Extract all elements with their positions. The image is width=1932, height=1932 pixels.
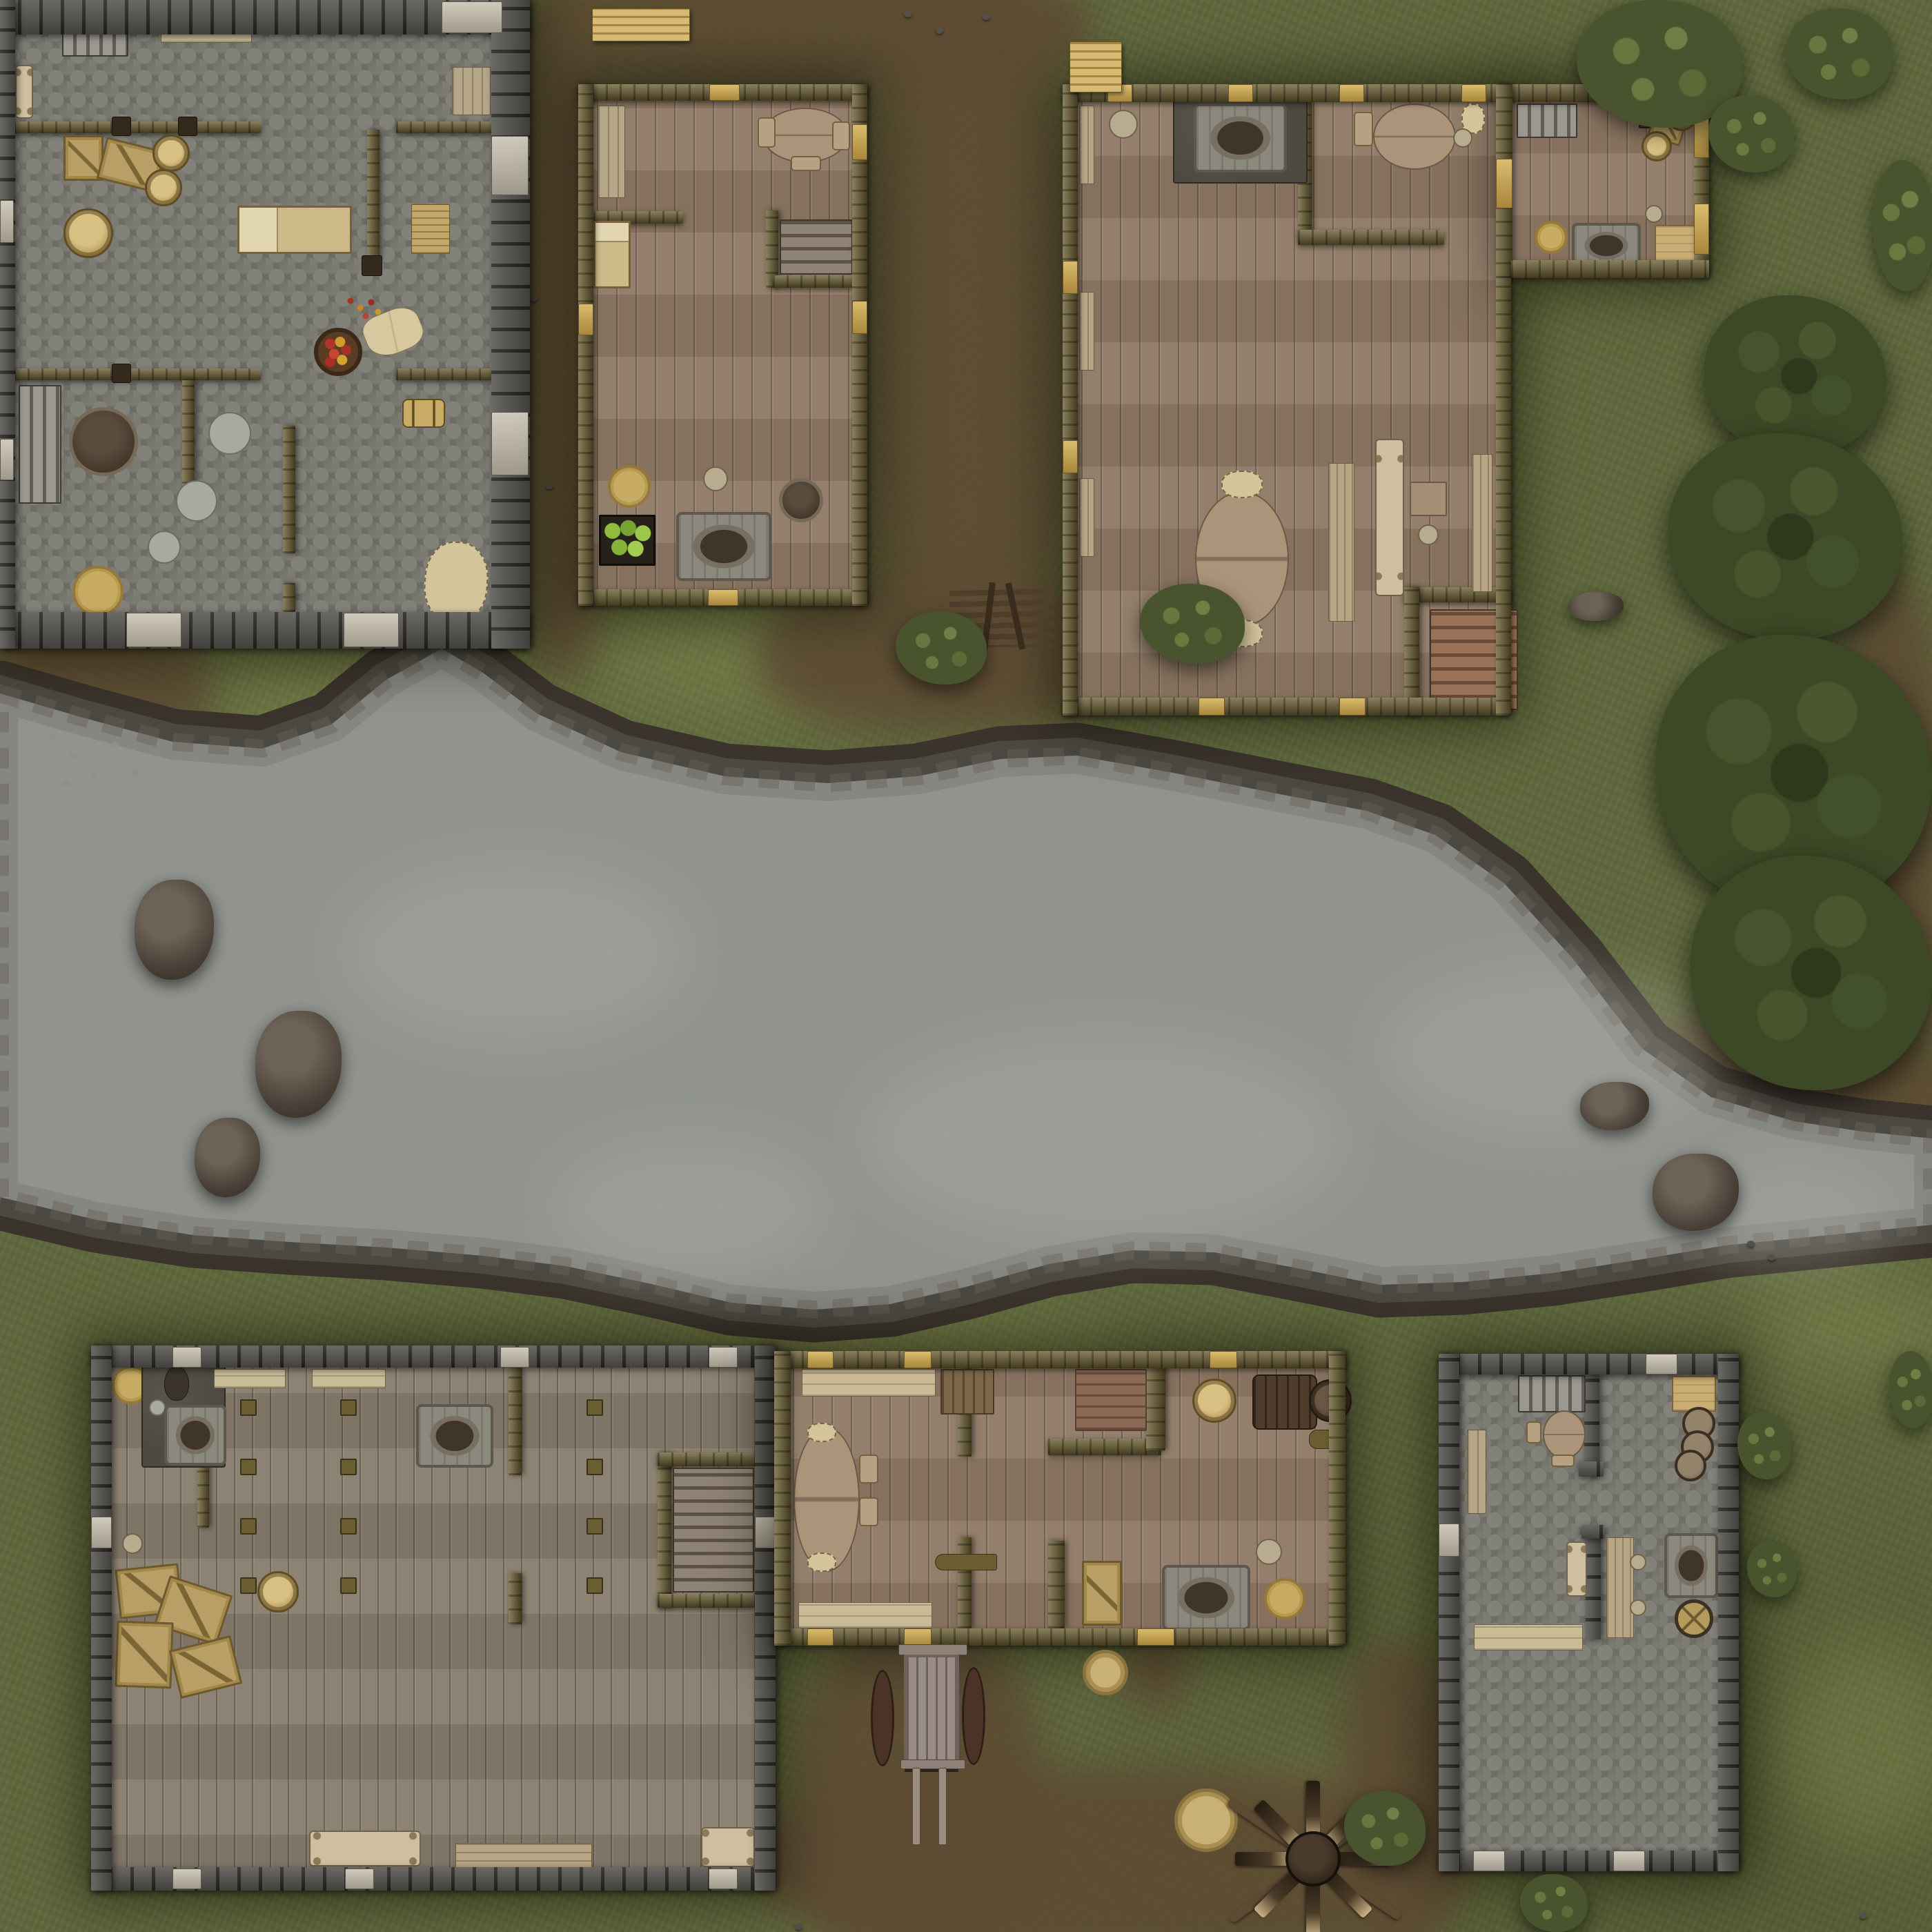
hearth (1664, 1533, 1718, 1598)
wood-wall (1496, 278, 1511, 716)
door-post (755, 1517, 776, 1548)
door-post (345, 1869, 374, 1889)
wood-wall (283, 426, 295, 553)
bench (1474, 1624, 1583, 1650)
bench (1606, 1537, 1634, 1638)
door-post (578, 304, 593, 335)
stairs (1518, 1375, 1586, 1412)
bench (1079, 292, 1094, 371)
support-post (340, 1518, 357, 1535)
cart-handle (938, 1768, 947, 1845)
chair (758, 117, 776, 148)
wood-wall (1048, 1541, 1065, 1628)
support-post (240, 1518, 257, 1535)
water-highlight (862, 1035, 1345, 1242)
support-post (240, 1399, 257, 1416)
stone-wall (0, 612, 530, 649)
barrel (152, 135, 190, 172)
bench (1079, 106, 1094, 184)
platter (1264, 1578, 1305, 1619)
wood-wall (396, 368, 493, 380)
battle-map (0, 0, 1932, 1932)
wood-wall (774, 1628, 1345, 1646)
wood-wall (1329, 1351, 1345, 1646)
stool (1630, 1554, 1646, 1570)
door-post (1646, 1354, 1677, 1374)
stone-wall (1439, 1354, 1739, 1374)
shelf (452, 67, 491, 115)
cooking-bowl (69, 407, 138, 476)
counter (214, 1369, 286, 1388)
wood-wall (1146, 1358, 1165, 1450)
door-post (1137, 1628, 1174, 1646)
chair (1354, 112, 1373, 146)
stone-wall (91, 1345, 112, 1891)
door-post (500, 1347, 529, 1368)
basket (1174, 1788, 1238, 1852)
shelf (1467, 1430, 1486, 1514)
cooking-pot (1285, 1831, 1341, 1886)
stone-wall (1584, 1373, 1599, 1464)
stairs (1517, 103, 1577, 138)
door-post (904, 1351, 931, 1368)
pebble (1768, 1254, 1775, 1261)
wood-wall (1511, 260, 1709, 278)
cabbage-crate (599, 515, 655, 566)
water-highlight (552, 1138, 828, 1276)
gravel-pebble (90, 773, 98, 780)
door-post (1613, 1851, 1645, 1871)
plate (208, 412, 251, 455)
hearth (676, 512, 771, 581)
platter (72, 566, 124, 617)
door-post (1694, 204, 1709, 255)
barrel (257, 1571, 299, 1613)
barrel (1642, 131, 1672, 161)
chair (1526, 1421, 1541, 1443)
door-post (126, 613, 181, 647)
apple-basket (314, 328, 362, 376)
cart-wheel (871, 1670, 894, 1766)
gravel-pebble (62, 780, 70, 787)
stool (1256, 1539, 1282, 1565)
wall-post (112, 364, 131, 383)
wood-wall (958, 1537, 972, 1628)
door-post (172, 1869, 201, 1889)
stairs (19, 385, 61, 504)
dark-barrel (1252, 1374, 1317, 1430)
barrel (63, 208, 113, 258)
gravel-pebble (48, 731, 57, 738)
chair (859, 1497, 878, 1526)
cabinet (940, 1369, 994, 1414)
stone-wall (491, 0, 530, 649)
pebble (530, 295, 538, 302)
support-post (586, 1459, 603, 1475)
chair (859, 1455, 878, 1483)
support-post (240, 1577, 257, 1594)
plate (148, 531, 181, 564)
door-post (491, 412, 529, 475)
water-highlight (1380, 966, 1725, 1138)
door-post (1228, 84, 1253, 102)
stone-wall (1718, 1354, 1739, 1871)
bench (309, 1831, 421, 1866)
wood-wall (14, 368, 261, 380)
wood-wall (578, 84, 593, 606)
hearth (1194, 103, 1287, 172)
wood-wall (774, 1351, 1345, 1368)
crate (115, 1621, 173, 1689)
gravel-pebble (131, 769, 139, 776)
door-post (709, 1869, 738, 1889)
wood-wall (1063, 698, 1511, 716)
door-post (1199, 698, 1225, 716)
stairs (780, 219, 853, 275)
door-post (1339, 84, 1364, 102)
stool (122, 1533, 143, 1554)
stone-wall (1581, 1525, 1605, 1539)
wood-wall (774, 1351, 791, 1646)
door-post (1496, 159, 1512, 208)
bed (237, 206, 352, 254)
stool (1418, 524, 1439, 545)
support-post (240, 1459, 257, 1475)
water-highlight (345, 862, 690, 1042)
stool (1453, 128, 1472, 148)
stone-wall (1579, 1461, 1604, 1477)
door-post (1473, 1851, 1505, 1871)
cart-frame (898, 1644, 967, 1655)
wall-post (178, 117, 197, 136)
bed (593, 221, 631, 288)
bench (1079, 478, 1094, 557)
door-post (172, 1347, 201, 1368)
bench (1566, 1541, 1587, 1597)
wood-wall (852, 84, 867, 606)
door-post (91, 1517, 112, 1548)
pebble (1860, 1913, 1867, 1919)
cart-wheel (962, 1667, 985, 1765)
stool (1109, 110, 1138, 139)
bed (1655, 225, 1696, 262)
hearth (416, 1404, 493, 1468)
door-post (852, 301, 867, 334)
stool (1645, 205, 1663, 223)
stone-wall (1586, 1537, 1601, 1639)
wood-wall (509, 1368, 522, 1475)
counter (312, 1369, 386, 1388)
door-post (708, 589, 738, 606)
table (1410, 482, 1447, 516)
pebble (936, 28, 943, 34)
bench (1375, 439, 1404, 596)
door-post (852, 124, 867, 160)
plank-shelf (411, 204, 450, 254)
bed (1672, 1376, 1716, 1412)
door-post (442, 1, 502, 33)
cart-bed (904, 1655, 959, 1772)
bench (455, 1843, 592, 1871)
pelt-seat (1221, 471, 1263, 498)
chair (791, 156, 821, 171)
bench (802, 1369, 936, 1397)
support-post (340, 1577, 357, 1594)
cart-frame (900, 1759, 965, 1769)
support-post (586, 1577, 603, 1594)
basket (1083, 1650, 1128, 1695)
bush (1747, 1541, 1797, 1597)
wood-wall (14, 121, 261, 133)
anvil (164, 1366, 189, 1401)
bench (1472, 454, 1492, 592)
wood-wall (1404, 587, 1419, 716)
wood-wall (1404, 587, 1511, 602)
door-post (344, 613, 399, 647)
wood-wall (658, 1594, 756, 1608)
pebble (983, 14, 990, 20)
pelt-seat (807, 1423, 836, 1442)
bench (798, 1602, 932, 1628)
door-post (709, 84, 740, 101)
wall-post (362, 255, 382, 276)
crate (1082, 1561, 1122, 1626)
cooking-bowl (779, 478, 823, 522)
hearth (1162, 1565, 1250, 1630)
platter (608, 465, 651, 508)
door-post (0, 200, 14, 243)
barrel (1192, 1379, 1236, 1423)
chair (1551, 1455, 1575, 1467)
stool (1630, 1599, 1646, 1616)
plate (149, 1399, 166, 1416)
round-table (1373, 103, 1456, 170)
wood-platform (1075, 1369, 1147, 1431)
stone-wall (0, 0, 15, 649)
door-post (807, 1351, 834, 1368)
wood-wall (658, 1452, 671, 1608)
door-post (0, 439, 14, 480)
plank-pile (592, 8, 690, 41)
door-post (709, 1347, 738, 1368)
stone-wall (1439, 1354, 1459, 1871)
bench (701, 1827, 755, 1867)
gravel-pebble (69, 752, 77, 759)
door-post (1461, 84, 1486, 102)
pebble (904, 11, 911, 17)
wall-stub (935, 1554, 997, 1570)
hearth (164, 1405, 226, 1466)
door-post (491, 136, 529, 195)
barrel (1675, 1450, 1706, 1481)
pebble (1747, 1241, 1755, 1247)
barrel (145, 169, 182, 206)
lidded-barrel (1675, 1599, 1713, 1638)
support-post (340, 1459, 357, 1475)
door-post (1063, 440, 1078, 473)
stone-wall (755, 1345, 776, 1891)
plank-pile (1069, 41, 1122, 92)
oval-table (793, 1427, 860, 1572)
door-post (807, 1628, 834, 1646)
support-post (340, 1399, 357, 1416)
wood-wall (658, 1452, 756, 1466)
wood-wall (773, 275, 854, 288)
bench (15, 65, 33, 119)
door-post (1439, 1524, 1459, 1557)
platter (1535, 221, 1568, 254)
chair (832, 121, 850, 150)
wood-wall (367, 130, 379, 261)
stool (703, 466, 728, 491)
door-post (1210, 1351, 1237, 1368)
wood-wall (1048, 1439, 1161, 1455)
round-table (1543, 1410, 1586, 1459)
support-post (586, 1518, 603, 1535)
shelf (598, 106, 625, 198)
bench (1328, 463, 1354, 622)
wood-wall (396, 121, 493, 133)
gravel-pebble (110, 742, 119, 749)
wood-wall (1063, 84, 1078, 716)
door-post (1063, 261, 1078, 294)
cart-handle (912, 1768, 920, 1845)
door-post (904, 1628, 931, 1646)
door-post (1339, 698, 1366, 716)
pelt-seat (807, 1552, 836, 1572)
support-post (586, 1399, 603, 1416)
wood-wall (283, 583, 295, 612)
wood-wall (509, 1573, 522, 1624)
wood-wall (1298, 230, 1444, 245)
barrel-on-side (402, 399, 445, 428)
wall-post (112, 117, 131, 136)
pebble (795, 1924, 802, 1930)
pebble (546, 483, 553, 489)
stairs (673, 1468, 754, 1593)
plate (176, 480, 217, 522)
